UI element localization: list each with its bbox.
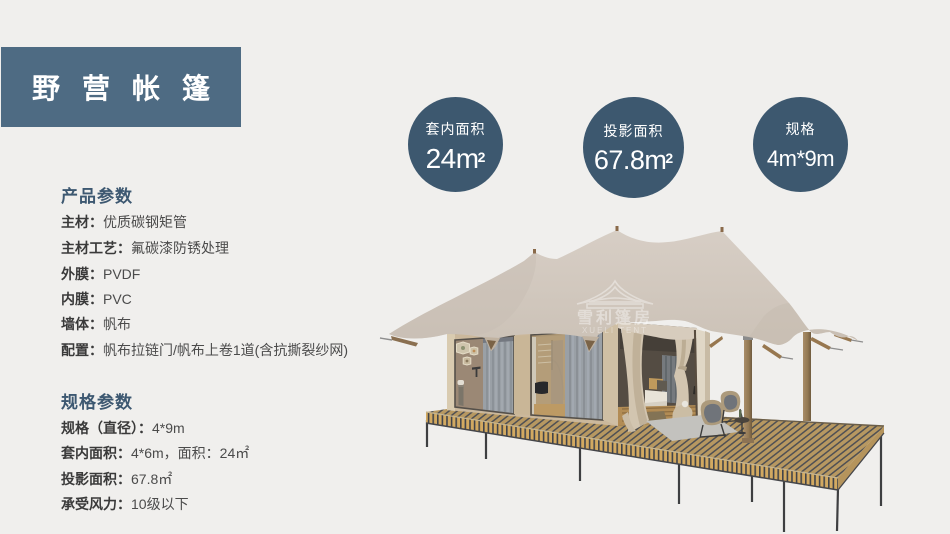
svg-text:XUELI TENT: XUELI TENT (582, 326, 648, 335)
svg-text:雪利篷房: 雪利篷房 (577, 308, 653, 327)
